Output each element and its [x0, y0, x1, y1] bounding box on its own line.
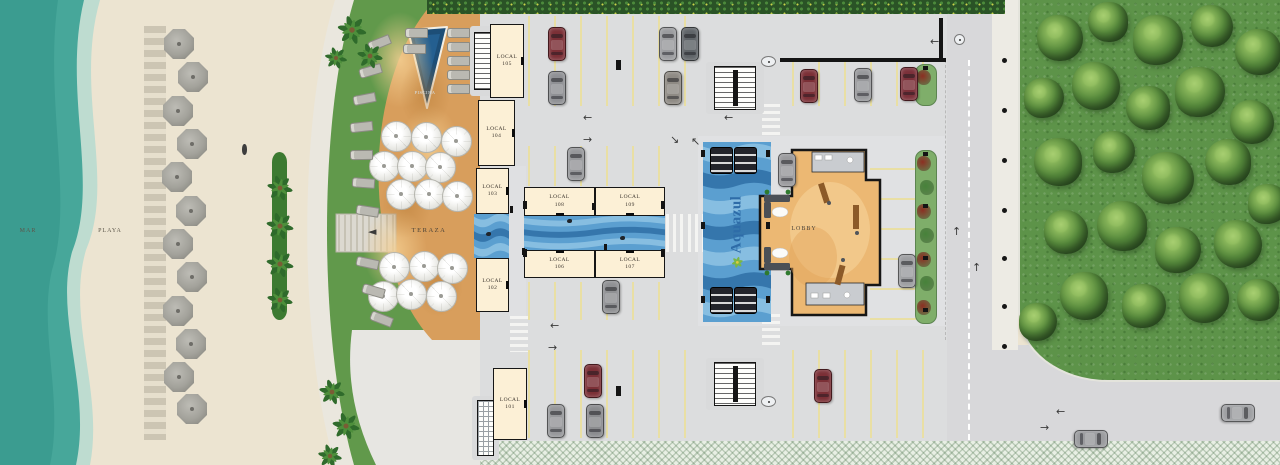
stair-divider: [733, 70, 738, 105]
staircase: [714, 362, 756, 406]
car-roof: [605, 293, 617, 303]
rear-window: [667, 96, 679, 99]
tree: [1237, 279, 1279, 321]
tree: [1214, 220, 1262, 268]
umbrella-hub: [427, 192, 431, 196]
windshield: [903, 74, 915, 78]
windshield: [551, 78, 563, 82]
door-mark: [521, 57, 524, 65]
tree-highlight: [1213, 145, 1232, 162]
rear-window: [901, 279, 913, 282]
umbrella-hub: [382, 164, 386, 168]
car-roof: [903, 80, 915, 90]
tree-highlight: [1255, 190, 1272, 205]
beach-umbrella: [164, 29, 194, 59]
terrace-umbrella: [396, 279, 427, 310]
umbrella-hub: [189, 209, 193, 213]
rear-window: [589, 429, 601, 432]
local-number: 107: [625, 264, 634, 270]
rear-window: [550, 429, 562, 432]
windshield: [1244, 407, 1248, 419]
beach-umbrella: [177, 394, 207, 424]
wall-post: [604, 244, 607, 251]
coffee-table: [772, 248, 788, 258]
terrace-umbrella: [442, 181, 473, 212]
fixture: [811, 293, 818, 298]
beach-umbrella: [163, 96, 193, 126]
local-label: LOCAL103: [477, 184, 508, 198]
windshield: [781, 160, 793, 164]
bollard-dot: [1002, 256, 1007, 261]
brand-wordmark: Aquazul: [729, 195, 746, 253]
car-roof: [570, 160, 582, 170]
car-roof: [684, 40, 696, 50]
bollard-dot: [1002, 304, 1007, 309]
umbrella-hub: [394, 134, 398, 138]
car: [1221, 404, 1255, 422]
car-roof: [1232, 407, 1242, 419]
terrace-umbrella: [414, 179, 445, 210]
umbrella-hub: [177, 375, 181, 379]
tree: [1230, 100, 1274, 144]
rear-window: [605, 305, 617, 308]
local-name: LOCAL: [549, 257, 569, 263]
terrace-umbrella: [425, 152, 456, 183]
door-mark: [556, 250, 564, 253]
local-unit: LOCAL101: [493, 368, 527, 440]
palm-tree: [316, 442, 344, 465]
tree: [1191, 5, 1233, 47]
reception-desk: [853, 205, 859, 229]
car: [778, 153, 796, 187]
door-mark: [506, 187, 509, 195]
palm-tree: [265, 285, 295, 315]
tree-highlight: [1095, 8, 1112, 23]
car-roof: [803, 82, 815, 92]
top-hedge: [427, 0, 1005, 14]
local-name: LOCAL: [482, 184, 502, 190]
umbrella-hub: [190, 142, 194, 146]
umbrella-hub: [177, 42, 181, 46]
wall-post: [661, 201, 665, 209]
car-roof: [550, 417, 562, 427]
umbrella-hub: [189, 342, 193, 346]
terrace-umbrella: [409, 251, 440, 282]
car-roof: [817, 382, 829, 392]
terrace-umbrella: [437, 253, 468, 284]
car: [548, 71, 566, 105]
wall-post: [522, 248, 525, 255]
umbrella-hub: [190, 407, 194, 411]
car: [681, 27, 699, 61]
bollard-dot: [1002, 58, 1007, 63]
wall-post: [616, 60, 621, 70]
local-unit: LOCAL104: [478, 100, 515, 166]
door-mark: [512, 129, 515, 137]
tree-highlight: [1142, 22, 1163, 41]
wall-post: [616, 386, 621, 396]
tree-highlight: [1223, 227, 1243, 245]
shrub: [920, 228, 934, 243]
rear-window: [903, 92, 915, 95]
terrace-umbrella: [386, 179, 417, 210]
car: [898, 254, 916, 288]
windshield: [803, 76, 815, 80]
beach-umbrella: [178, 62, 208, 92]
car: [548, 27, 566, 61]
car: [547, 404, 565, 438]
rear-window: [551, 52, 563, 55]
road-edge-dashed: [945, 60, 946, 340]
car: [1074, 430, 1108, 448]
traffic-arrow: ←: [550, 320, 559, 331]
chair: [827, 201, 831, 205]
local-unit: LOCAL107: [595, 250, 665, 278]
rear-window: [551, 96, 563, 99]
traffic-arrow: →: [1040, 422, 1049, 433]
wall-post: [939, 18, 943, 60]
terrace-umbrella: [379, 252, 410, 283]
rear-window: [662, 52, 674, 55]
beach-umbrella: [162, 162, 192, 192]
car-roof: [551, 84, 563, 94]
tree-highlight: [1134, 92, 1152, 109]
palm-tree: [323, 45, 349, 71]
local-unit: LOCAL105: [490, 24, 524, 98]
chair: [855, 231, 859, 235]
door-mark: [524, 400, 527, 408]
planter-post: [923, 256, 928, 260]
bollard-dot: [1002, 344, 1007, 349]
shrub: [920, 276, 934, 291]
tree: [1072, 62, 1120, 110]
tree: [1044, 210, 1088, 254]
umbrella-hub: [439, 294, 443, 298]
local-name: LOCAL: [482, 278, 502, 284]
terrace-umbrella: [397, 151, 428, 182]
palm-tree: [264, 248, 296, 280]
parking-stall-lines: [528, 146, 666, 186]
chair: [841, 258, 845, 262]
local-label: LOCAL105: [491, 54, 523, 68]
tree: [1179, 273, 1229, 323]
local-number: 101: [505, 404, 514, 410]
planter-post: [923, 152, 928, 156]
beach-umbrella: [164, 362, 194, 392]
staircase: [714, 66, 756, 110]
flower-cluster: [917, 70, 931, 85]
beach-umbrella: [177, 129, 207, 159]
car: [854, 68, 872, 102]
car-roof: [589, 417, 601, 427]
tree: [1088, 2, 1128, 42]
tree-highlight: [1101, 137, 1119, 153]
plant: [786, 271, 791, 276]
rear-window: [817, 394, 829, 397]
plant: [786, 190, 791, 195]
rear-window: [1227, 407, 1230, 419]
local-number: 103: [488, 191, 497, 197]
local-number: 104: [492, 133, 501, 139]
sun-lounger: [447, 42, 470, 52]
windshield: [550, 411, 562, 415]
tree: [1126, 86, 1170, 130]
local-unit: LOCAL108: [524, 187, 595, 216]
umbrella-hub: [399, 192, 403, 196]
tree: [1097, 201, 1147, 251]
windshield: [857, 75, 869, 79]
local-number: 108: [555, 202, 564, 208]
local-name: LOCAL: [497, 54, 517, 60]
palm-tree: [355, 41, 385, 71]
umbrella-hub: [409, 292, 413, 296]
beach-umbrella: [163, 296, 193, 326]
traffic-arrow: ◄: [368, 226, 376, 237]
car: [664, 71, 682, 105]
traffic-arrow: ↘: [670, 134, 679, 145]
fixture: [823, 293, 830, 298]
car: [814, 369, 832, 403]
palm-tree: [317, 377, 347, 407]
wall-post: [780, 58, 946, 62]
local-label: LOCAL101: [494, 397, 526, 411]
car: [900, 67, 918, 101]
car: [584, 364, 602, 398]
umbrella-hub: [176, 109, 180, 113]
bottom-green-strip: [468, 441, 1280, 465]
windshield: [667, 78, 679, 82]
beach-label: PLAYA: [88, 228, 132, 235]
traffic-arrow: ←: [724, 112, 733, 123]
umbrella-hub: [438, 165, 442, 169]
aquazul-pool-logo: Aquazul: [703, 142, 771, 322]
local-label: LOCAL104: [479, 126, 514, 140]
crosswalk: [666, 214, 683, 252]
sun-lounger: [352, 177, 376, 189]
traffic-arrow: ↑: [972, 262, 981, 273]
palm-tree: [330, 410, 362, 442]
local-name: LOCAL: [620, 194, 640, 200]
local-number: 105: [502, 61, 511, 67]
local-number: 106: [555, 264, 564, 270]
car: [800, 69, 818, 103]
wall-post: [523, 201, 527, 209]
site-plan: Aquazul MAR PLAYA TERAZA PISCINA: [0, 0, 1280, 465]
sun-lounger: [447, 28, 470, 38]
car-roof: [662, 40, 674, 50]
traffic-arrow: ←: [583, 112, 592, 123]
palm-logo-icon: [730, 255, 744, 269]
terrace-umbrella: [426, 281, 457, 312]
local-name: LOCAL: [500, 397, 520, 403]
car-roof: [781, 166, 793, 176]
crosswalk: [762, 104, 780, 138]
local-label: LOCAL107: [596, 257, 664, 271]
traffic-arrow: ←: [1056, 406, 1065, 417]
rear-window: [857, 93, 869, 96]
wall-post: [510, 206, 513, 213]
local-unit: LOCAL103: [476, 168, 509, 214]
local-unit: LOCAL106: [524, 250, 595, 278]
car: [586, 404, 604, 438]
traffic-arrow: ←: [930, 36, 939, 47]
door-mark: [626, 213, 634, 216]
beach-umbrella: [177, 262, 207, 292]
fixture: [825, 155, 832, 160]
door-mark: [506, 281, 509, 289]
tree-highlight: [1151, 159, 1173, 179]
person-icon: [242, 144, 247, 155]
fixture: [815, 155, 822, 160]
traffic-arrow: →: [583, 134, 592, 145]
planter-post: [923, 308, 928, 312]
umbrella-hub: [424, 135, 428, 139]
local-number: 109: [625, 202, 634, 208]
beach-boardwalk: [144, 26, 166, 440]
tree-highlight: [1243, 35, 1262, 52]
sea-label: MAR: [8, 228, 48, 235]
south-pavement: [350, 330, 480, 465]
marker-dot: [768, 401, 770, 403]
umbrella-hub: [454, 139, 458, 143]
local-name: LOCAL: [620, 257, 640, 263]
marker-dot: [959, 39, 961, 41]
umbrella-hub: [422, 264, 426, 268]
door-mark: [626, 250, 634, 253]
water-feature: [474, 214, 509, 258]
rear-window: [781, 178, 793, 181]
crosswalk: [510, 316, 528, 352]
entry-marker: [761, 396, 776, 407]
umbrella-hub: [450, 266, 454, 270]
car: [659, 27, 677, 61]
planter-post: [923, 66, 928, 70]
rear-window: [803, 94, 815, 97]
tree-highlight: [1199, 11, 1217, 27]
tree-highlight: [1106, 208, 1127, 227]
sun-lounger: [350, 150, 373, 160]
wall-post: [661, 249, 665, 257]
tree: [1060, 272, 1108, 320]
planter-post: [923, 204, 928, 208]
tree-highlight: [1245, 285, 1263, 301]
sun-lounger: [447, 56, 470, 66]
umbrella-hub: [176, 242, 180, 246]
coffee-table: [772, 207, 788, 217]
flower-cluster: [917, 156, 931, 171]
tree-highlight: [1031, 84, 1048, 99]
windshield: [684, 34, 696, 38]
terrace-umbrella: [411, 122, 442, 153]
fixture: [847, 157, 853, 163]
tree: [1142, 152, 1194, 204]
terrace-label: TERAZA: [405, 227, 453, 235]
pool-label: PISCINA: [407, 90, 443, 95]
windshield: [1097, 433, 1101, 445]
rear-window: [1080, 433, 1083, 445]
tree-highlight: [1163, 233, 1182, 250]
entry-marker: [761, 56, 776, 67]
tree-highlight: [1130, 290, 1148, 307]
bollard-dot: [1002, 108, 1007, 113]
traffic-arrow: →: [548, 342, 557, 353]
sun-lounger: [447, 84, 470, 94]
umbrella-hub: [175, 175, 179, 179]
terrace-umbrella: [381, 121, 412, 152]
local-unit: LOCAL102: [476, 258, 509, 312]
duck-icon: [728, 298, 733, 302]
bollard-dot: [1002, 208, 1007, 213]
tree-highlight: [1043, 145, 1063, 163]
local-number: 102: [488, 285, 497, 291]
local-label: LOCAL106: [525, 257, 594, 271]
tree-highlight: [1045, 21, 1064, 38]
beach-umbrella: [176, 196, 206, 226]
car-roof: [901, 267, 913, 277]
palm-tree: [264, 210, 296, 242]
beach-umbrella: [176, 329, 206, 359]
local-label: LOCAL108: [525, 194, 594, 208]
windshield: [901, 261, 913, 265]
umbrella-hub: [455, 194, 459, 198]
sun-lounger: [403, 44, 426, 54]
terrace-umbrella: [369, 151, 400, 182]
tree: [1235, 29, 1280, 75]
duck-icon: [486, 232, 491, 236]
tree-highlight: [1188, 280, 1209, 299]
door-mark: [556, 213, 564, 216]
wall-post: [592, 203, 595, 210]
staircase: [477, 400, 494, 456]
lobby-floor-swirl2: [789, 227, 837, 287]
tree-highlight: [1052, 216, 1070, 233]
water-feature: [524, 216, 665, 250]
umbrella-hub: [392, 265, 396, 269]
car: [567, 147, 585, 181]
fixture: [844, 292, 850, 298]
windshield: [605, 287, 617, 291]
beach-umbrella: [163, 229, 193, 259]
bollard-dot: [1002, 158, 1007, 163]
car-roof: [667, 84, 679, 94]
tree-highlight: [1081, 69, 1101, 87]
rear-window: [570, 172, 582, 175]
road-centerline: [968, 60, 970, 440]
duck-icon: [620, 236, 625, 240]
tree: [1248, 184, 1280, 224]
tree: [1037, 15, 1083, 61]
marker-dot: [768, 61, 770, 63]
tree-highlight: [1026, 308, 1042, 322]
umbrella-hub: [410, 164, 414, 168]
local-name: LOCAL: [549, 194, 569, 200]
shrub: [920, 180, 934, 195]
tree: [1205, 139, 1251, 185]
sun-lounger: [405, 28, 428, 38]
stair-divider: [733, 366, 738, 401]
windshield: [589, 411, 601, 415]
local-unit: LOCAL109: [595, 187, 665, 216]
tree-highlight: [1069, 279, 1089, 297]
rear-window: [587, 389, 599, 392]
car-roof: [551, 40, 563, 50]
windshield: [570, 154, 582, 158]
palm-tree: [265, 173, 295, 203]
umbrella-hub: [190, 275, 194, 279]
windshield: [817, 376, 829, 380]
tree-highlight: [1238, 106, 1256, 123]
sun-lounger: [447, 70, 470, 80]
